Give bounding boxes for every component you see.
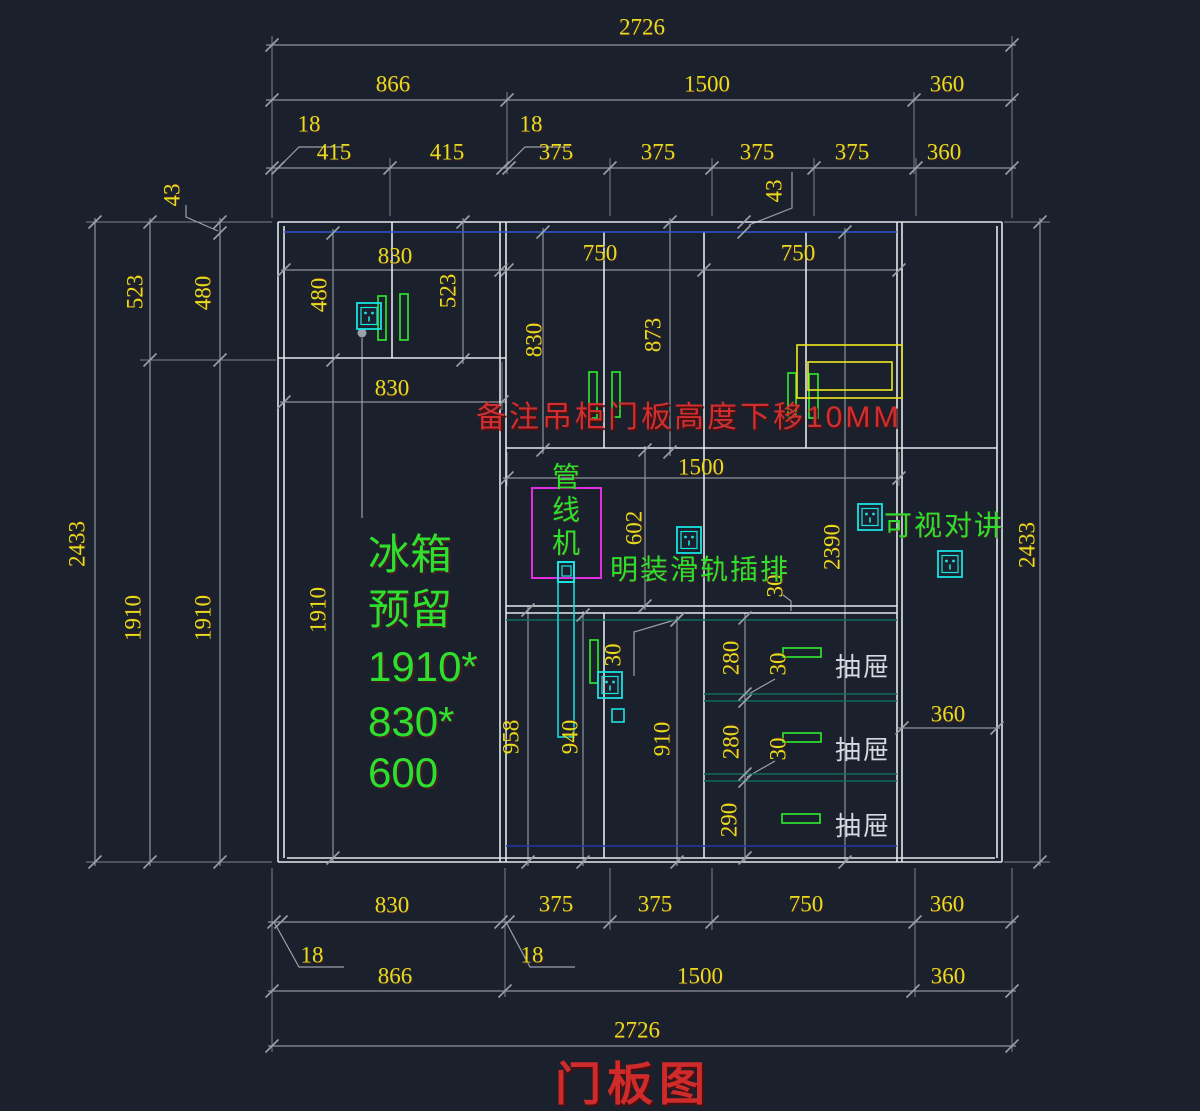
dim-low-30-b: 30	[767, 738, 790, 761]
dim-inner-480: 480	[308, 278, 331, 313]
dim-bot-375-a: 375	[539, 893, 574, 916]
fridge-note-line3: 1910*	[368, 646, 478, 688]
fridge-note-line1: 冰箱	[368, 534, 452, 576]
dim-mid-602: 602	[623, 511, 646, 546]
dim-low-30-a: 30	[767, 653, 790, 676]
dim-left-480: 480	[192, 276, 215, 311]
dim-bot-866: 866	[378, 965, 413, 988]
drawer-label-3: 抽屉	[835, 813, 891, 839]
cad-door-panel-drawing: 2726 866 1500 360 18 18 415 415 375 375 …	[0, 0, 1200, 1111]
dim-mid-830: 830	[523, 323, 546, 358]
dim-low-910: 910	[651, 722, 674, 757]
dim-top-43: 43	[763, 180, 786, 203]
dim-left-43: 43	[161, 184, 184, 207]
dim-bot-360-b: 360	[931, 965, 966, 988]
dim-top-1500: 1500	[684, 73, 730, 96]
small-cyan-box	[612, 709, 624, 722]
dim-top-overall: 2726	[619, 16, 665, 39]
dim-top-415-1: 415	[317, 141, 352, 164]
dim-left-2433: 2433	[66, 521, 89, 567]
dim-low-940: 940	[559, 720, 582, 755]
dim-mid-750-b: 750	[781, 242, 816, 265]
dim-mid-873: 873	[642, 318, 665, 353]
dim-top-360: 360	[930, 73, 965, 96]
drawing-title: 门板图	[555, 1048, 711, 1111]
dim-top-18-mid: 18	[520, 113, 543, 136]
dim-top-18-left: 18	[298, 113, 321, 136]
dim-low-280-b: 280	[720, 725, 743, 760]
dim-inner-830-bot: 830	[375, 377, 410, 400]
dim-top-375-2: 375	[641, 141, 676, 164]
dim-low-290: 290	[718, 803, 741, 838]
dim-bot-18-mid: 18	[521, 944, 544, 967]
power-socket-icon	[938, 551, 962, 577]
dim-top-375-3: 375	[740, 141, 775, 164]
dim-left-523: 523	[124, 275, 147, 310]
dim-bot-830: 830	[375, 894, 410, 917]
dim-left-1910-b: 1910	[192, 595, 215, 641]
range-hood-outline	[797, 345, 902, 398]
red-note: 备注吊柜门板高度下移10MM	[476, 403, 901, 433]
dim-bot-750: 750	[789, 893, 824, 916]
video-intercom-label: 可视对讲	[884, 512, 1004, 540]
dim-inner-830-top: 830	[378, 245, 413, 268]
dim-bot-18-left: 18	[301, 944, 324, 967]
dim-mid-1500: 1500	[678, 456, 724, 479]
dim-inner-523: 523	[437, 274, 460, 309]
dim-top-375-1: 375	[539, 141, 574, 164]
dim-bot-375-b: 375	[638, 893, 673, 916]
dim-mid-2390: 2390	[821, 524, 844, 570]
water-pipe	[558, 562, 574, 737]
dim-right-2433: 2433	[1016, 522, 1039, 568]
dim-top-415-2: 415	[430, 141, 465, 164]
dim-low-958: 958	[500, 720, 523, 755]
power-socket-icon	[598, 672, 622, 698]
dim-right-360: 360	[931, 703, 966, 726]
fridge-note-line4: 830*	[368, 701, 454, 743]
power-socket-icon	[677, 527, 701, 553]
dim-bot-1500: 1500	[677, 965, 723, 988]
drawer-label-2: 抽屉	[835, 737, 891, 763]
dim-left-1910-a: 1910	[122, 595, 145, 641]
dim-top-360-b: 360	[927, 141, 962, 164]
dim-mid-30-handle: 30	[602, 644, 625, 667]
power-socket-icon	[858, 504, 882, 530]
dim-inner-1910: 1910	[307, 587, 330, 633]
rail-socket-label: 明装滑轨插排	[610, 556, 790, 584]
dim-low-280-a: 280	[720, 641, 743, 676]
dim-mid-750-a: 750	[583, 242, 618, 265]
dim-top-866: 866	[376, 73, 411, 96]
dim-bot-overall: 2726	[614, 1019, 660, 1042]
drawer-label-1: 抽屉	[835, 654, 891, 680]
dim-top-375-4: 375	[835, 141, 870, 164]
fridge-note-line2: 预留	[368, 589, 452, 631]
dim-bot-360-a: 360	[930, 893, 965, 916]
pipe-machine-label: 管线机	[549, 461, 583, 560]
fridge-note-line5: 600	[368, 752, 438, 794]
